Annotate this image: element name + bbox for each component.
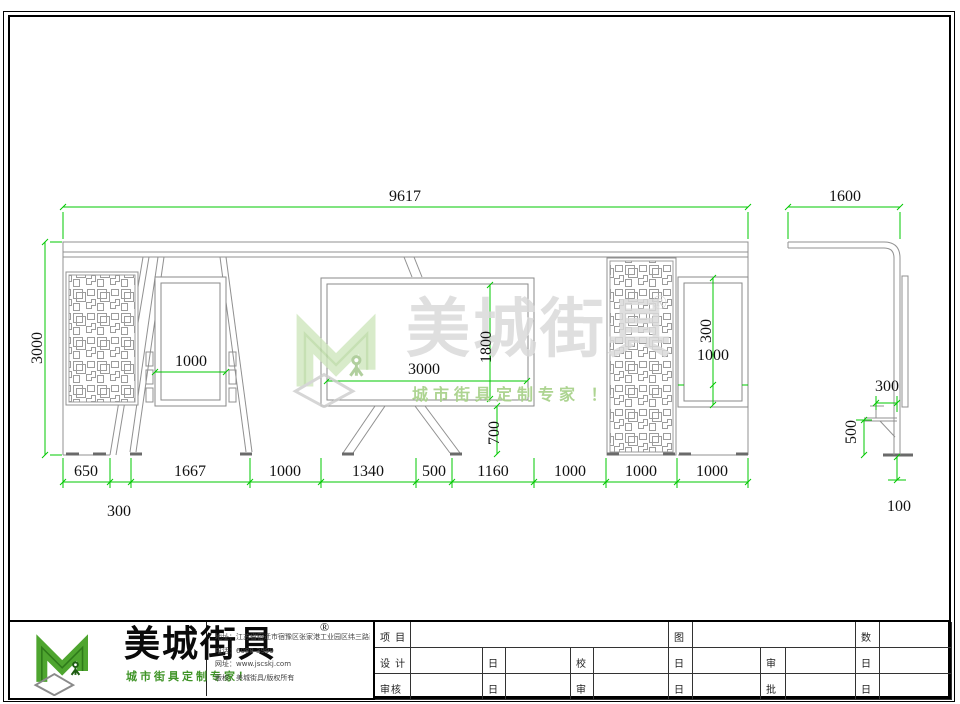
title-proofread-label: 校对 [571,648,594,674]
title-quantity-value [880,622,952,648]
title-date-value-1 [506,648,571,674]
dim-bottom-1: 1667 [160,464,220,480]
dim-side-depth: 1600 [815,189,875,205]
dim-bottom-2: 1000 [255,464,315,480]
dim-left-sign-width: 1000 [161,354,221,370]
dim-panel-height: 1800 [479,319,495,375]
title-drawing-name-label: 图 名 [669,622,693,648]
title-design-label: 设 计 [375,648,411,674]
dim-bottom-6: 1000 [540,464,600,480]
phone-line: 电话：6088 3999 [215,645,370,659]
title-approve-check-label: 审定 [571,674,594,700]
title-proofread-value [594,648,669,674]
watermark-brand-text: 美城街具 [406,298,674,362]
title-project-value [411,622,669,648]
watermark-slogan: 城市街具定制专家 ！ [412,381,612,405]
title-reviewer2-value [411,674,483,700]
dim-panel-clearance: 700 [487,405,503,461]
dim-panel-width: 3000 [394,362,454,378]
address-line: 地址：江苏省宿迁市宿豫区张家港工业园区纬三路西侧1号 [215,631,370,645]
drawing-sheet: 美城街具 ® 城市街具定制专家 ！ 9617 1600 3000 1000 30… [0,0,960,704]
title-approve-label: 批准 [761,674,786,700]
title-date-label-5: 日 期 [669,674,693,700]
copyright-line: 版权：美城街具/版权所有 [215,672,370,686]
lattice-panel-left [66,272,138,405]
title-date-label-4: 日 期 [483,674,506,700]
title-block: 项 目 图 名 数 量 设 计 日 期 校对 日 期 审核一 日 期 审核二 日… [373,620,950,698]
dim-seat-height: 500 [844,404,860,460]
dim-bottom-sub: 300 [89,504,149,520]
title-date-value-2 [693,648,761,674]
title-reviewer2-label: 审核二 [375,674,411,700]
company-logo [22,624,118,696]
title-date-value-3 [880,648,952,674]
title-project-label: 项 目 [375,622,411,648]
dim-overall-width: 9617 [375,189,435,205]
title-drawing-name-value [693,622,856,648]
title-design-value [411,648,483,674]
dim-bottom-3: 1340 [338,464,398,480]
dim-bottom-7: 1000 [611,464,671,480]
title-quantity-label: 数 量 [856,622,880,648]
dim-bottom-4: 500 [404,464,464,480]
dim-seat-depth: 300 [857,379,917,395]
dim-bottom-8: 1000 [682,464,742,480]
title-date-label-3: 日 期 [856,648,880,674]
title-date-label-6: 日 期 [856,674,880,700]
title-date-value-6 [880,674,952,700]
watermark-registered-icon: ® [652,292,667,315]
watermark-logo [288,298,408,408]
title-date-label-1: 日 期 [483,648,506,674]
dim-overall-height: 3000 [30,320,46,376]
title-reviewer1-value [786,648,856,674]
dim-base-offset: 100 [869,499,929,515]
title-approve-value [786,674,856,700]
company-contact-block: 地址：江苏省宿迁市宿豫区张家港工业园区纬三路西侧1号 电话：6088 3999 … [215,631,370,685]
website-line: 网址：www.jscskj.com [215,658,370,672]
title-approve-check-value [594,674,669,700]
dim-bottom-0: 650 [56,464,116,480]
title-date-value-4 [506,674,571,700]
title-date-value-5 [693,674,761,700]
dim-bottom-5: 1160 [463,464,523,480]
title-reviewer1-label: 审核一 [761,648,786,674]
title-date-label-2: 日 期 [669,648,693,674]
dim-right-sign-width: 1000 [683,348,743,364]
